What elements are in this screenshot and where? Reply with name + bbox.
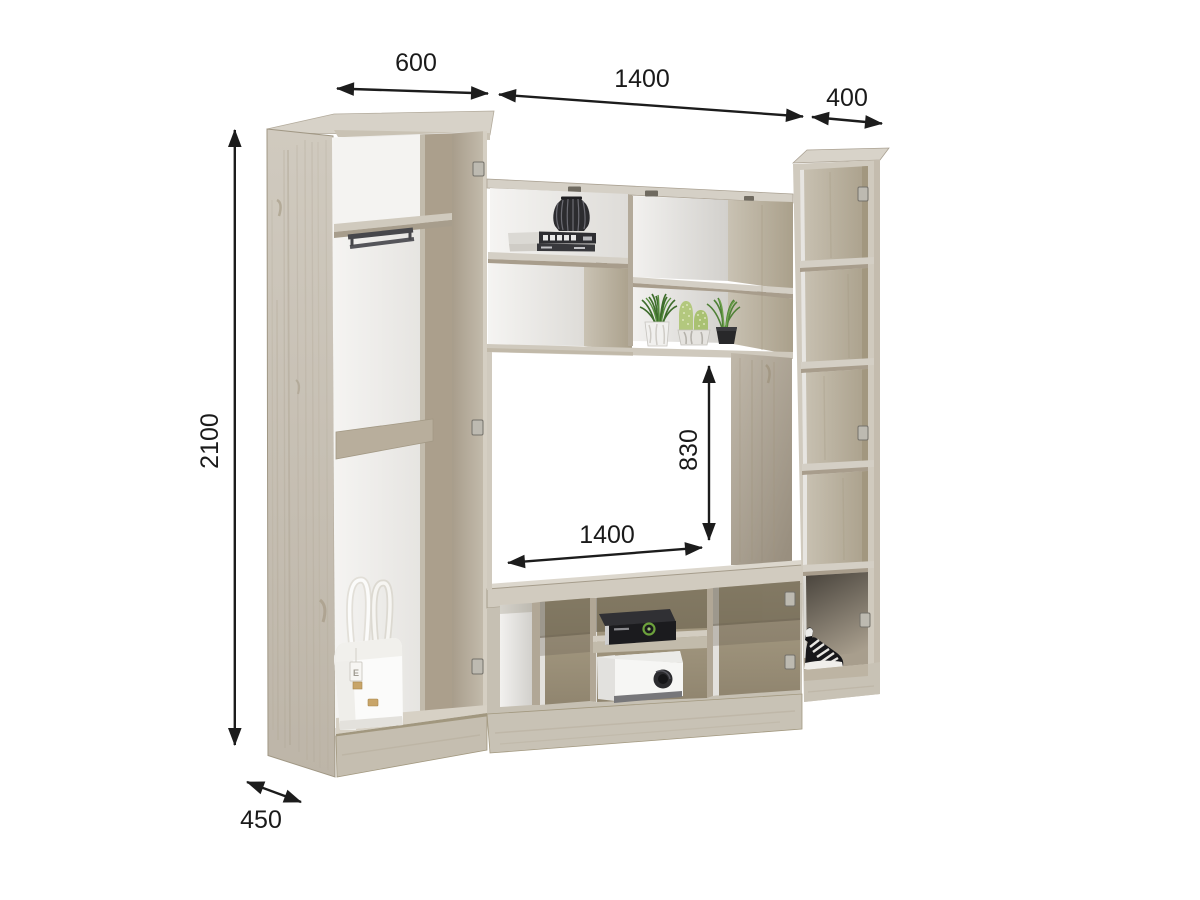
svg-text:2100: 2100 xyxy=(196,413,224,469)
svg-text:1400: 1400 xyxy=(579,521,635,549)
svg-text:600: 600 xyxy=(395,49,437,77)
svg-text:E: E xyxy=(353,668,359,678)
svg-text:400: 400 xyxy=(826,84,868,112)
svg-text:450: 450 xyxy=(240,806,282,834)
svg-text:1400: 1400 xyxy=(614,65,670,93)
svg-text:830: 830 xyxy=(675,429,703,471)
